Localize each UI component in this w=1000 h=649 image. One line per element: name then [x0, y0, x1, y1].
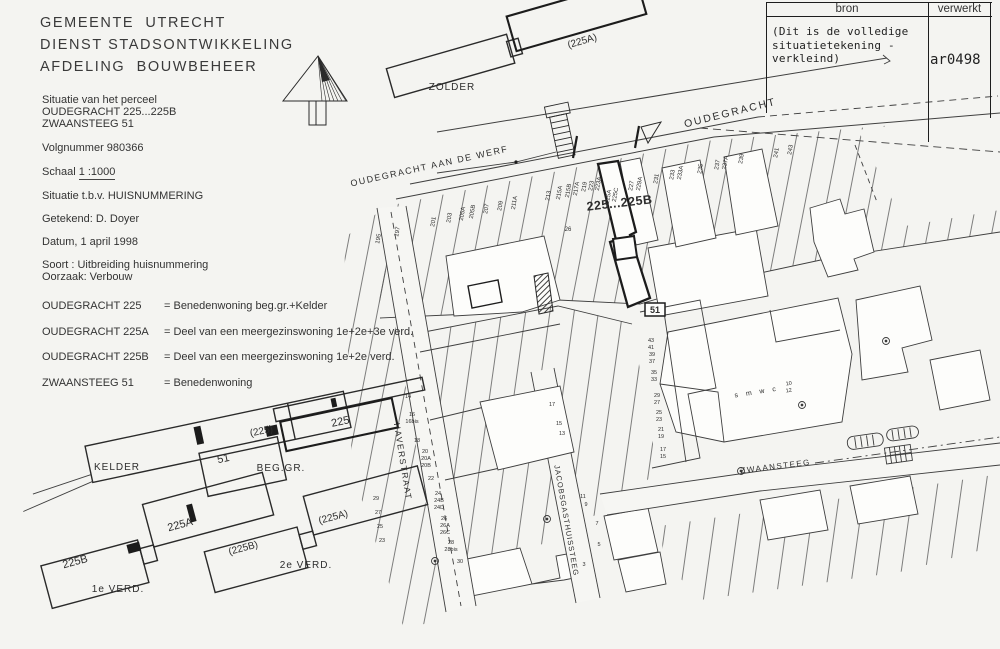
- parcel-number: 25: [656, 410, 662, 416]
- legend-row: ZWAANSTEEG 51= Benedenwoning: [42, 377, 252, 389]
- parcel-number: 9: [584, 502, 587, 508]
- parcel-number: 43: [648, 338, 654, 344]
- building: [930, 350, 990, 410]
- page-root: { "header": { "line1": "GEMEENTE UTRECHT…: [0, 0, 1000, 649]
- floorplan-label: 1e VERD.: [92, 584, 144, 595]
- legend-desc: = Benedenwoning beg.gr.+Kelder: [164, 300, 327, 312]
- parcel-number: 13: [559, 431, 565, 437]
- parcel-number: 37: [649, 359, 655, 365]
- parcel-number: 7: [595, 521, 598, 527]
- parcel-number: 29: [373, 496, 379, 502]
- info-datum: Datum, 1 april 1998: [42, 237, 138, 248]
- parcel-number: 28bis: [444, 547, 457, 553]
- parcel-number: 23: [656, 417, 662, 423]
- parcel-number: 17: [549, 402, 555, 408]
- stamp-col-verwerkt-label: verwerkt: [929, 3, 990, 15]
- parcel-number: 39: [649, 352, 655, 358]
- parcel-number: 21: [658, 427, 664, 433]
- map-key-label: 12: [785, 388, 792, 395]
- parcel-number: 16: [409, 412, 415, 418]
- parcel-number: 20B: [421, 463, 431, 469]
- info-getekend: Getekend: D. Doyer: [42, 214, 139, 225]
- info-address-1: OUDEGRACHT 225...225B: [42, 107, 176, 118]
- parcel-number: 15: [660, 454, 666, 460]
- floorplan-label: 51: [216, 452, 230, 466]
- quay-line: [437, 58, 887, 132]
- street-name-label: OUDEGRACHT: [683, 96, 778, 131]
- map-key-label: 10: [785, 381, 792, 388]
- header-line-2: DIENST STADSONTWIKKELING: [40, 34, 294, 56]
- info-soort: Soort : Uitbreiding huisnummering: [42, 260, 208, 271]
- parcel-number: 29: [654, 393, 660, 399]
- schaal-value: 1 :1000: [79, 166, 116, 180]
- wharf-edge-dashed: [758, 96, 998, 117]
- legend-address: OUDEGRACHT 225: [42, 300, 164, 312]
- info-situatie-tbv: Situatie t.b.v. HUISNUMMERING: [42, 191, 203, 202]
- legend-row: OUDEGRACHT 225= Benedenwoning beg.gr.+Ke…: [42, 300, 327, 312]
- parcel-number: 23: [379, 538, 385, 544]
- parcel-number: 17: [660, 447, 666, 453]
- legend-address: OUDEGRACHT 225B: [42, 351, 164, 363]
- floorplan-zolder: [382, 0, 650, 98]
- parcel-number: 3: [582, 562, 585, 568]
- dimension-tick: [635, 126, 639, 148]
- info-volgnummer: Volgnummer 980366: [42, 143, 144, 154]
- parcel-number: 28: [448, 540, 454, 546]
- situation-map: OUDEGRACHT AAN DE WERFOUDEGRACHTHAVERSTR…: [344, 55, 1000, 632]
- floorplan-label: (225A): [317, 508, 349, 526]
- building: [810, 199, 874, 277]
- legend-row: OUDEGRACHT 225A= Deel van een meergezins…: [42, 326, 413, 338]
- legend-row: OUDEGRACHT 225B= Deel van een meergezins…: [42, 351, 395, 363]
- table-header-rule: [766, 16, 992, 17]
- parcel-number: 18: [414, 438, 420, 444]
- parcel-number: 14: [405, 394, 411, 400]
- parcel-number: 22: [428, 476, 434, 482]
- parcel-225-notch: [613, 236, 637, 260]
- stamp-code: ar0498: [930, 52, 981, 68]
- parcel-number: 24: [435, 491, 441, 497]
- map-key-label: 51: [650, 305, 660, 315]
- stamp-note: (Dit is de volledige situatietekening - …: [772, 25, 926, 66]
- building: [604, 508, 658, 560]
- parcel-number: 26C: [440, 530, 450, 536]
- table-border-right: [990, 2, 991, 118]
- parcel-number: 30: [457, 559, 463, 565]
- header-line-1: GEMEENTE UTRECHT: [40, 12, 294, 34]
- parcel-number: 25: [377, 524, 383, 530]
- parcel-number: 26A: [440, 523, 450, 529]
- parcel-number: 15: [556, 421, 562, 427]
- floorplan-label: 2e VERD.: [280, 560, 332, 571]
- floorplan-label: (225): [249, 424, 274, 440]
- floorplan-label: 225A: [166, 516, 195, 534]
- table-border-separator: [928, 2, 929, 142]
- parcel-number: 24D: [434, 505, 444, 511]
- floorplan-label: KELDER: [94, 462, 140, 473]
- leader-dot: [514, 160, 517, 163]
- legend-address: OUDEGRACHT 225A: [42, 326, 164, 338]
- parcel-number: 26: [441, 516, 447, 522]
- floorplan-label: BEG.GR.: [257, 463, 306, 474]
- parcel-number: 20: [422, 449, 428, 455]
- stamp-col-bron-label: bron: [766, 3, 928, 15]
- parcel-number: 20A: [421, 456, 431, 462]
- legend-desc: = Deel van een meergezinswoning 1e+2e+3e…: [164, 326, 413, 338]
- parcel-number: 35: [651, 370, 657, 376]
- building-smwc: [660, 298, 852, 442]
- parcel-number: 26: [565, 227, 572, 233]
- legend-desc: = Deel van een meergezinswoning 1e+2e ve…: [164, 351, 395, 363]
- header-line-3: AFDELING BOUWBEHEER: [40, 56, 294, 78]
- floorplan-label: 225B: [61, 553, 89, 571]
- parcel-number: 5: [597, 542, 600, 548]
- parcel-number: 33: [651, 377, 657, 383]
- parcel-number: 16bis: [405, 419, 418, 425]
- parcel-number: 27: [375, 510, 381, 516]
- info-schaal: Schaal 1 :1000: [42, 167, 115, 178]
- parcel-number: 19: [658, 434, 664, 440]
- parcel-number: 11: [580, 494, 586, 500]
- schaal-label: Schaal: [42, 166, 76, 178]
- building: [856, 286, 932, 380]
- table-border-left: [766, 2, 767, 113]
- parcel-number: 41: [648, 345, 654, 351]
- dimension-pennant: [641, 122, 661, 143]
- legend-address: ZWAANSTEEG 51: [42, 377, 164, 389]
- header-block: GEMEENTE UTRECHT DIENST STADSONTWIKKELIN…: [40, 12, 294, 78]
- floorplan-label: (225B): [227, 539, 259, 557]
- info-oorzaak: Oorzaak: Verbouw: [42, 272, 133, 283]
- parcel-number: 24B: [434, 498, 444, 504]
- floorplan-label: ZOLDER: [429, 82, 476, 93]
- info-situatie-label: Situatie van het perceel: [42, 95, 157, 106]
- legend-desc: = Benedenwoning: [164, 377, 252, 389]
- info-address-2: ZWAANSTEEG 51: [42, 119, 134, 130]
- parcel-number: 27: [654, 400, 660, 406]
- floorplan-label: 225: [330, 414, 350, 430]
